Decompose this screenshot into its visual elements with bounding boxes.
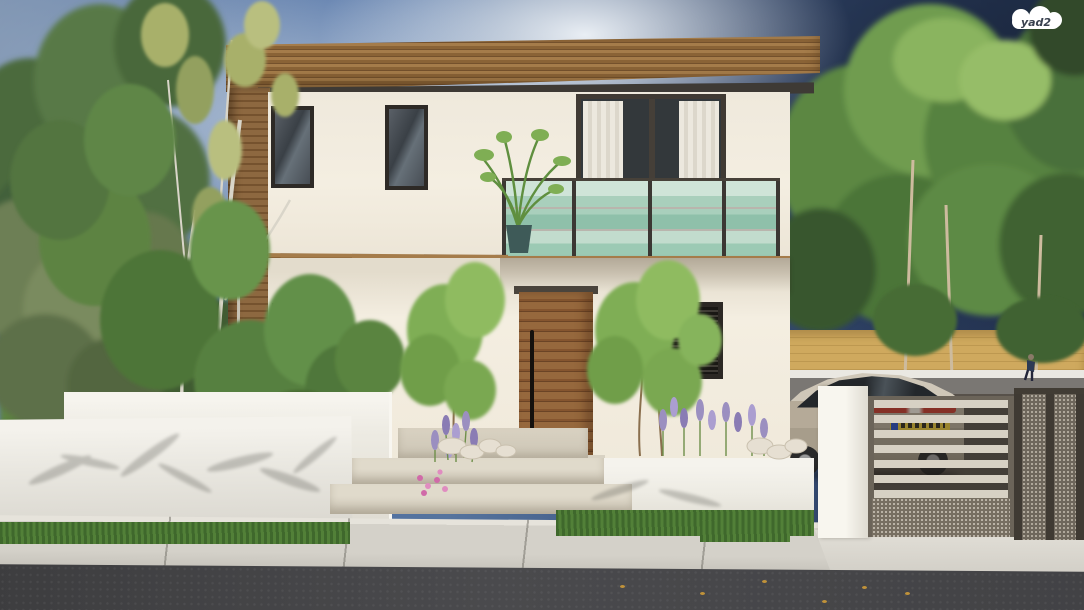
pedestrian-gate-mesh bbox=[1014, 388, 1084, 540]
yad2-watermark: yad2 bbox=[1004, 7, 1068, 35]
fence-post bbox=[1014, 394, 1022, 540]
gate-pillar bbox=[818, 386, 868, 538]
pink-flowers bbox=[417, 469, 448, 496]
fence-post bbox=[1076, 394, 1084, 540]
house-render-photo: yad2 bbox=[0, 0, 1084, 610]
watermark-text: yad2 bbox=[1021, 16, 1051, 29]
gate-mesh-panel bbox=[872, 498, 1010, 537]
small-tree-foliage bbox=[400, 260, 722, 420]
leaf-shadows-on-wall bbox=[27, 430, 722, 510]
fence-post bbox=[1046, 394, 1054, 540]
